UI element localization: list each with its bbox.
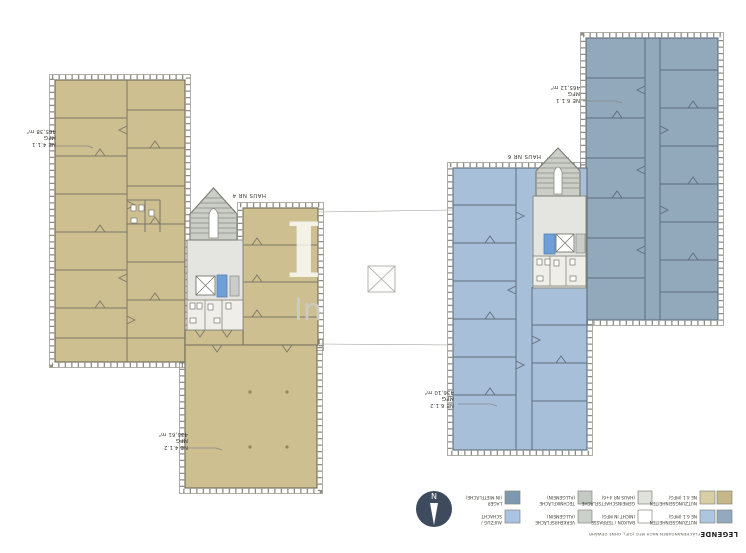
area-label-ne-6-1-1: NE 6.1.1 MFG 465,12 m²	[536, 76, 580, 103]
legend-swatch-ne4-b	[717, 491, 732, 504]
legend-label-technik: TECHNIKFLÄCHE (ALLGEMEIN)	[533, 490, 575, 505]
haus-nr-6-label: HAUS NR 6	[504, 150, 541, 159]
void-shaft-icon	[368, 266, 395, 292]
legend-label-verkehr: VERKEHRSFLÄCHE (ALLGEMEIN)	[533, 509, 575, 524]
area-label-ne-4-1-2: NE 4.1.2 MFG 435,61 m²	[144, 423, 188, 450]
haus4-corridor-strip	[185, 330, 243, 346]
legend-label-balkon: BALKON / TERRASSE (NICHT IN MFG)	[591, 509, 635, 524]
floor-plan-canvas	[0, 0, 746, 553]
legend-label-ne6: NUTZUNGSEINHEITEN NE 6.1 (MFG)	[656, 509, 697, 524]
watermark-initial: I	[286, 213, 322, 289]
legend-note: FLÄCHENANGABEN NACH MFG (GIF), OHNE GEWÄ…	[618, 529, 700, 537]
legend-label-lager: LAGER (IN MIETFLÄCHE)	[460, 490, 502, 505]
haus-nr-4-label: HAUS NR 4	[229, 189, 266, 198]
legend-label-ne4: NUTZUNGSEINHEITEN NE 4.1 (MFG)	[656, 490, 697, 505]
legend-swatch-lager	[505, 491, 520, 504]
unit-id: NE 4.1.1	[12, 140, 56, 147]
legend-swatch-verkehr	[578, 510, 592, 523]
unit-use: MFG	[144, 437, 188, 444]
unit-use: MFG	[12, 134, 56, 141]
unit-use: MFG	[536, 90, 580, 97]
unit-area: 436,10 m²	[410, 388, 454, 395]
haus6-core	[533, 148, 586, 288]
unit-use: MFG	[410, 395, 454, 402]
floor-plan-page: NE 4.1.1 MFG 465,38 m² NE 4.1.2 MFG 435,…	[0, 0, 746, 553]
legend-swatch-ne6-b	[717, 510, 732, 523]
legend-label-aufzug: AUFZUG / SCHACHT	[460, 509, 502, 524]
unit-id: NE 4.1.2	[144, 443, 188, 450]
haus6-shaft-blue	[544, 234, 555, 254]
haus4-hall	[185, 345, 317, 488]
watermark-text: In	[294, 296, 322, 326]
area-label-ne-4-1-1: NE 4.1.1 MFG 465,38 m²	[12, 120, 56, 147]
legend-swatch-ne4-a	[700, 491, 715, 504]
unit-id: NE 6.1.1	[536, 96, 580, 103]
legend-label-gemeinschaft: GEMEINSCHAFTSFLÄCHE (HAUS NR 4+6)	[591, 490, 635, 505]
legend-swatch-aufzug	[505, 510, 520, 523]
haus4-shaft-blue	[217, 275, 227, 297]
haus4-left-wing	[55, 80, 185, 362]
unit-id: NE 6.1.2	[410, 401, 454, 408]
unit-area: 465,38 m²	[12, 127, 56, 134]
legend-title: LEGENDE	[702, 528, 738, 538]
area-label-ne-6-1-2: NE 6.1.2 MFG 436,10 m²	[410, 381, 454, 408]
unit-area: 435,61 m²	[144, 430, 188, 437]
legend-swatch-ne6-a	[700, 510, 715, 523]
compass-north-label: N	[426, 492, 442, 503]
haus4-wc-zone	[187, 300, 243, 330]
unit-area: 465,12 m²	[536, 83, 580, 90]
